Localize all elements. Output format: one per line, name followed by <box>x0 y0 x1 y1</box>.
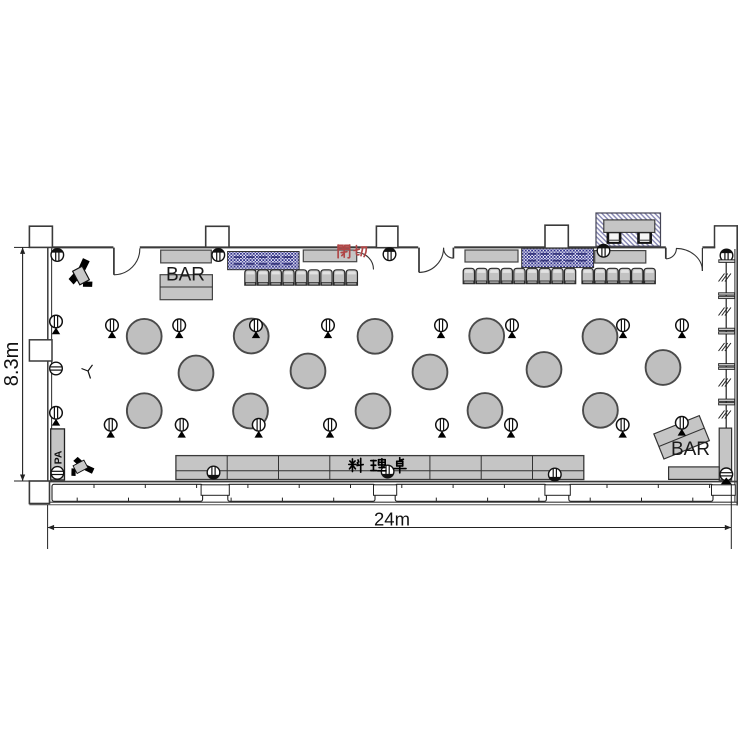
svg-text:BAR: BAR <box>166 265 205 286</box>
svg-text:8.3m: 8.3m <box>1 342 23 386</box>
svg-text:PA: PA <box>52 450 64 464</box>
svg-text:BAR: BAR <box>671 439 710 460</box>
svg-text:24m: 24m <box>374 509 410 530</box>
